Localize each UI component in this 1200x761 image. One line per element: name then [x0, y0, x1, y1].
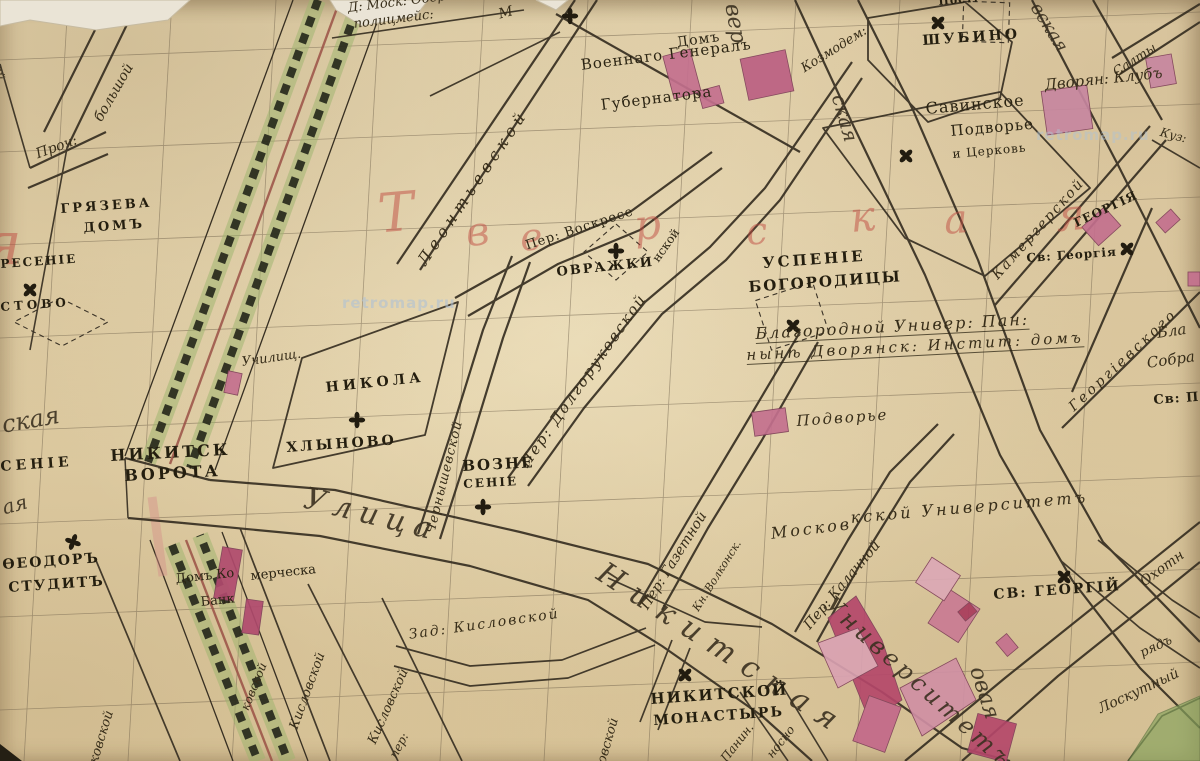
district-letter: к	[848, 195, 877, 239]
label-house-mark-m: М	[497, 4, 514, 21]
label-kislovsky-frag-c: Кисловской	[288, 651, 328, 731]
label-dmitrovka-frag: вская	[1027, 0, 1071, 55]
label-voznesenie-1: ВОЗНЕ	[462, 455, 535, 474]
church-cross-icon	[349, 412, 365, 428]
label-lane-zad-kislovsky: Зад: Кисловской	[408, 607, 560, 642]
label-noy-frag: ной	[0, 56, 7, 81]
label-commercial-bank-3: Банк	[200, 592, 235, 608]
label-school: Училищ.	[241, 348, 302, 369]
label-savinskoe-1: Савинское	[925, 92, 1025, 117]
label-commercial-bank-1: Домъ Ко	[175, 567, 235, 586]
label-ovrazhki: ОВРАЖКИ	[556, 256, 655, 279]
church-cross-icon	[674, 664, 697, 687]
label-lane-dolgorukovsky: Пер: Долгоруковской	[518, 291, 650, 470]
church-cross-icon	[63, 532, 84, 553]
map-drawing	[0, 0, 1200, 761]
church-cross-icon	[1116, 238, 1139, 261]
label-khlynovo: ХЛЫНОВО	[286, 433, 397, 455]
label-proch: Проч:	[34, 133, 79, 161]
label-kislovsky-frag-a: ковской	[88, 709, 116, 761]
label-tverskaya-frag1: вер	[720, 2, 749, 45]
label-podvorye: Подворье	[796, 408, 889, 429]
label-savinskoe-2: Подворье	[950, 117, 1034, 139]
district-letter: а	[942, 199, 969, 241]
label-governor-general-house-3: Губернатора	[600, 84, 713, 113]
label-kislovsky-frag-b: ковской	[239, 661, 269, 712]
church-cross-icon	[895, 145, 918, 168]
label-feodor-1: ѲЕОДОРЪ	[2, 551, 100, 572]
label-church-uspenie-1: УСПЕНІЕ	[762, 249, 866, 271]
label-sv-p-frag: Св: П	[1153, 391, 1200, 407]
church-cross-icon	[562, 8, 578, 24]
label-per-frag: пер:	[387, 731, 410, 760]
dashed-plots	[14, 1, 1010, 350]
church-cross-icon	[475, 499, 491, 515]
label-nosno-frag: носно	[765, 723, 797, 760]
label-aya-frag: ая	[0, 491, 29, 517]
historical-map-canvas[interactable]: Т в е р с к а я я Д: Моск: Обер- полицме…	[0, 0, 1200, 761]
label-sobra-frag: Собра	[1146, 349, 1196, 371]
label-gryazeva-2: ДОМЪ	[83, 218, 145, 235]
label-loskutny-1: Лоскутный	[1096, 666, 1181, 716]
label-church-nikola: НИКОЛА	[325, 371, 425, 395]
label-savinskoe-3: и Церковь	[952, 142, 1027, 160]
district-letter: в	[464, 211, 491, 253]
label-nikitsky-monastery-2: МОНАСТЫРЬ	[653, 705, 784, 728]
watermark: retromap.ru	[342, 294, 456, 312]
torn-paper-edge	[0, 0, 568, 30]
label-loskutny-2: рядъ	[1138, 634, 1174, 660]
label-feodor-2: СТУДИТЪ	[8, 574, 105, 595]
label-panin-frag: Панин.	[719, 721, 756, 761]
label-ovskoy-frag: овской	[596, 717, 621, 761]
label-bla-frag: Бла	[1156, 322, 1187, 341]
label-nobles-club: Дворян: Клубъ	[1044, 66, 1163, 93]
label-ulitsa: Улица	[301, 484, 443, 547]
church-cross-icon	[608, 243, 624, 259]
map-grid	[0, 0, 1200, 761]
label-moscow-university-2: кской Университетъ	[850, 489, 1089, 526]
label-post-fragment: Пост:	[938, 0, 979, 7]
label-commercial-bank-2: мерческа	[250, 563, 317, 583]
map-corner-mark	[0, 744, 22, 761]
label-okhotny-frag: Охотн	[1138, 548, 1187, 589]
district-letter: Т	[376, 185, 417, 242]
label-skaya-frag: ская	[0, 403, 61, 437]
label-st-georgiy: СВ: ГЕОРГІЙ	[993, 579, 1121, 602]
label-street-kuz: Куз:	[1159, 126, 1188, 145]
label-church-uspenie-2: БОГОРОДИЦЫ	[748, 269, 902, 295]
district-letter: р	[632, 203, 662, 247]
label-church-shubino: ШУБИНО	[922, 27, 1020, 48]
label-gryazeva-1: ГРЯЗЕВА	[60, 197, 153, 216]
label-street-kozmodem: Козмодем:	[799, 24, 869, 75]
label-moscow-university-1: Москов	[770, 516, 853, 542]
label-resenie-frag: РЕСЕНІЕ	[0, 253, 78, 270]
label-nikitsky-monastery-1: НИКИТСКОЙ	[650, 682, 789, 707]
label-senie-frag: СЕНІЕ	[0, 455, 73, 474]
watermark: retromap.ru	[1036, 126, 1150, 144]
label-voznesenie-2: СЕНІЕ	[463, 475, 518, 490]
label-st-georgiya: Св: Георгія	[1026, 246, 1117, 264]
street-network	[0, 0, 1200, 761]
label-stovo-frag: СТОВО	[0, 296, 70, 313]
district-letter: с	[744, 211, 769, 251]
green-area	[1128, 696, 1200, 761]
label-bolshoy-frag: большой	[92, 61, 136, 124]
label-prince-volkonsky: Кн. Волконск.	[691, 538, 743, 613]
label-tverskaya-frag2: ская	[829, 92, 862, 144]
label-nikitsk-gates-2: ВОРОТА	[124, 463, 221, 484]
